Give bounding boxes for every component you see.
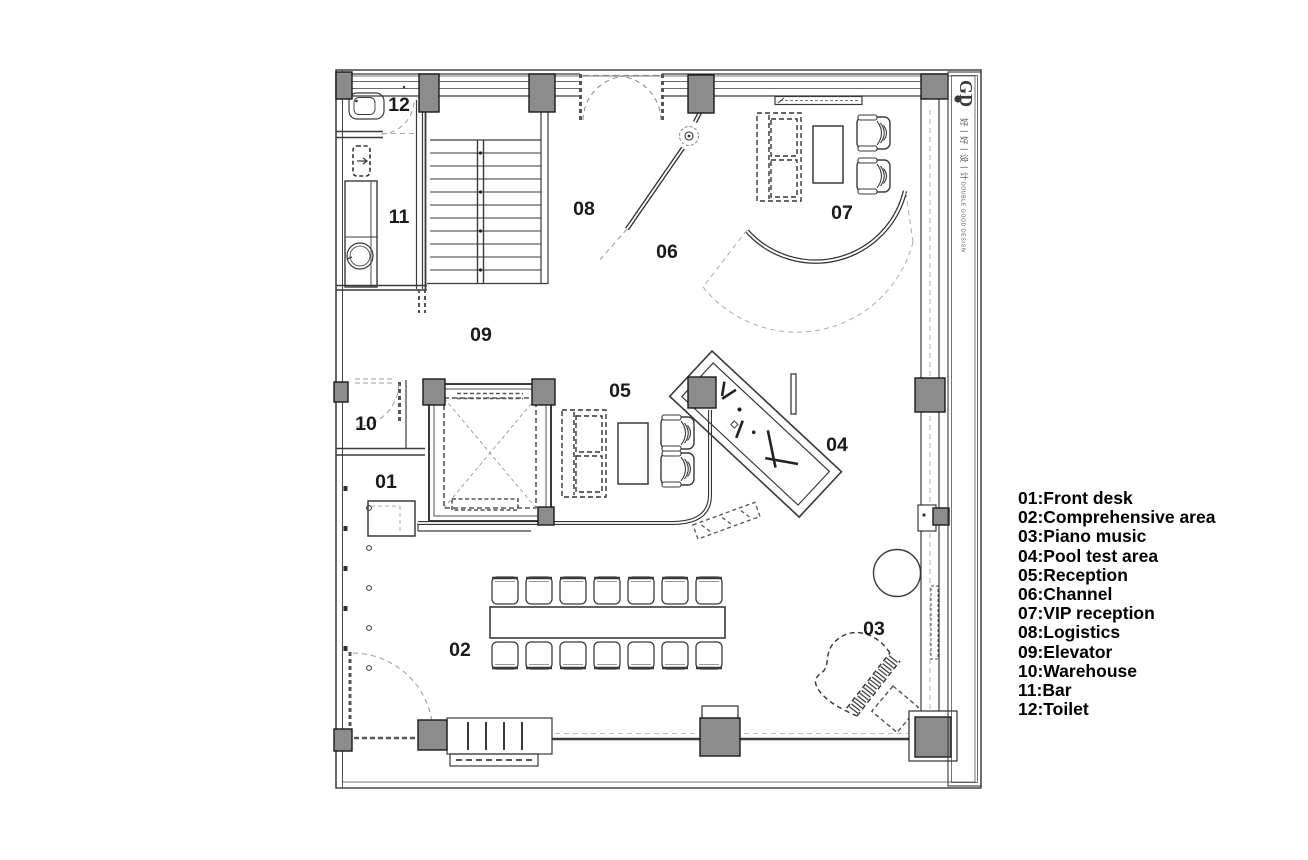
sofa-07 [757,113,801,201]
legend-item: 09:Elevator [1018,643,1215,662]
reception-05 [562,410,694,497]
warehouse-room [336,379,425,455]
legend-item: 12:Toilet [1018,700,1215,719]
room-label-08: 08 [573,198,595,220]
entry-cabinet [447,718,552,766]
brand-name-english: DOUBLE GOOD DESIGN [960,182,966,252]
legend-item: 03:Piano music [1018,527,1215,546]
right-wall [918,96,939,739]
armchair-07-a [857,115,890,151]
room-label-02: 02 [449,639,471,661]
armchair-05-a [661,415,694,451]
legend-item: 10:Warehouse [1018,662,1215,681]
legend: 01:Front desk 02:Comprehensive area 03:P… [1018,489,1215,719]
sofa-05 [562,410,606,497]
floor-plan-drawing: GD 好丨好丨设丨计 DOUBLE GOOD DESIGN 01 02 03 0… [0,0,1308,860]
legend-item: 11:Bar [1018,681,1215,700]
top-window-wall [352,74,948,96]
chairs-top-row [492,577,722,604]
room-label-11: 11 [389,206,410,228]
brand-logo: GD [956,80,976,107]
curved-screen-07 [703,191,913,332]
front-desk [368,501,415,536]
wall-hook-dots [344,486,348,651]
floor-plan-page: GD 好丨好丨设丨计 DOUBLE GOOD DESIGN 01 02 03 0… [0,0,1308,860]
meeting-area-02 [490,577,725,669]
room-label-06: 06 [656,241,678,263]
logo-dot [954,95,961,102]
title-strip: GD 好丨好丨设丨计 DOUBLE GOOD DESIGN [948,72,981,786]
cue-on-wall [791,374,796,414]
console-07 [775,97,862,105]
room-label-10: 10 [355,413,377,435]
armchair-05-b [661,451,694,487]
legend-item: 04:Pool test area [1018,547,1215,566]
room-label-05: 05 [609,380,631,402]
piano-area-03 [804,550,921,733]
long-table [490,607,725,638]
vip-reception-07 [703,97,913,333]
left-wall [336,70,433,788]
channel-partition-06 [598,101,706,262]
room-label-01: 01 [375,471,397,493]
room-label-07: 07 [831,202,853,224]
bench-04 [693,502,760,539]
bar-counter [345,181,377,287]
bottom-wall [447,718,940,766]
brand-name-chinese: 好丨好丨设丨计 [959,118,969,181]
elevator [418,384,551,531]
pool-table-frame [670,351,842,517]
room-label-03: 03 [863,618,885,640]
chairs-bottom-row [492,642,722,669]
legend-item: 07:VIP reception [1018,604,1215,623]
legend-item: 02:Comprehensive area [1018,508,1215,527]
legend-item: 06:Channel [1018,585,1215,604]
legend-item: 01:Front desk [1018,489,1215,508]
grand-piano [804,620,902,720]
legend-item: 08:Logistics [1018,623,1215,642]
room-label-04: 04 [826,434,848,456]
coffee-table-07 [813,126,843,183]
armchair-07-b [857,158,890,194]
legend-item: 05:Reception [1018,566,1215,585]
staircase [419,100,548,313]
room-label-12: 12 [388,94,410,116]
coffee-table-05 [618,423,648,484]
entrance-door [581,74,663,122]
bar-room [336,100,427,290]
room-label-09: 09 [470,324,492,346]
round-table [874,550,921,597]
bar-sink [347,243,373,269]
bar-appliance [353,146,370,176]
